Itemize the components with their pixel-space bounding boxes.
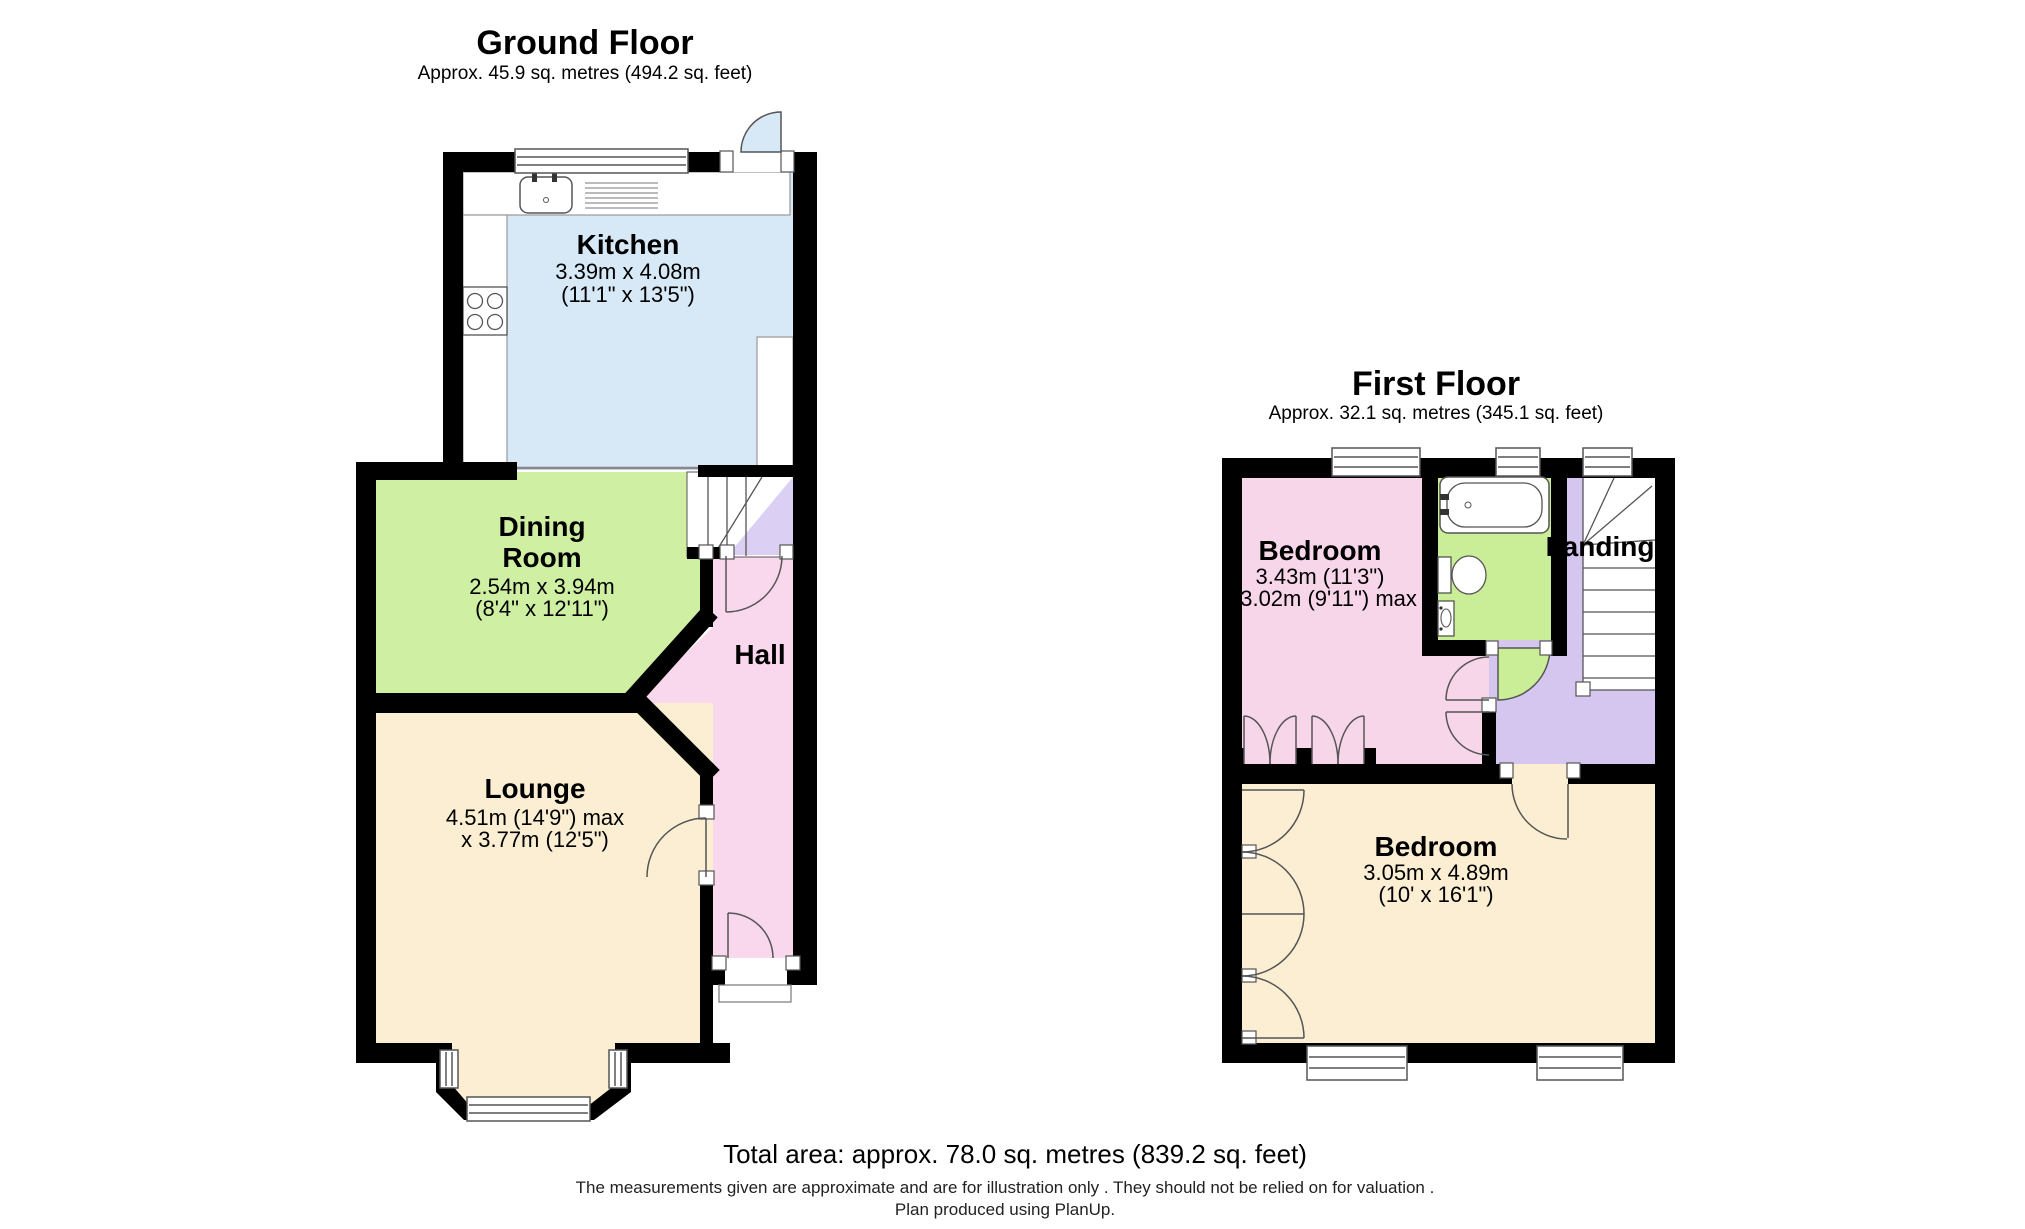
hall-label: Hall xyxy=(734,640,785,669)
stairs-window xyxy=(1583,448,1632,476)
bedroom2-door-opening xyxy=(1512,764,1568,784)
lounge-label: Lounge xyxy=(484,774,585,803)
dining-dims-metric: 2.54m x 3.94m xyxy=(469,575,615,598)
basin-icon xyxy=(1438,601,1454,636)
kitchen-sink-icon xyxy=(520,177,572,213)
front-step xyxy=(719,985,791,1002)
landing-label: Landing xyxy=(1546,532,1655,561)
floorplan-drawing xyxy=(0,0,2025,1229)
hob-icon xyxy=(463,287,507,335)
ground-floor-title: Ground Floor xyxy=(476,26,693,62)
kitchen-unit xyxy=(757,337,793,467)
kitchen-window xyxy=(515,149,688,173)
total-area-text: Total area: approx. 78.0 sq. metres (839… xyxy=(723,1141,1307,1168)
lounge-dims-line2: x 3.77m (12'5") xyxy=(461,828,609,851)
lounge-room xyxy=(366,703,713,1053)
bay-window-right xyxy=(609,1050,627,1088)
bedroom2-window-right xyxy=(1537,1046,1623,1080)
floorplan-canvas: Ground Floor Approx. 45.9 sq. metres (49… xyxy=(0,0,2025,1229)
dining-dims-imperial: (8'4" x 12'11") xyxy=(475,597,609,620)
kitchen-dims-imperial: (11'1" x 13'5") xyxy=(561,283,695,306)
kitchen-label: Kitchen xyxy=(577,230,680,259)
bathtub-icon xyxy=(1440,477,1549,533)
first-floor-area: Approx. 32.1 sq. metres (345.1 sq. feet) xyxy=(1269,404,1604,424)
ground-floor-area: Approx. 45.9 sq. metres (494.2 sq. feet) xyxy=(418,64,753,84)
kitchen-counter-left xyxy=(463,215,507,465)
bedroom2-window-left xyxy=(1307,1046,1407,1080)
bedroom2-label: Bedroom xyxy=(1375,832,1498,861)
bedroom1-window xyxy=(1332,448,1420,476)
kitchen-door-icon xyxy=(741,112,781,152)
dining-label-line2: Room xyxy=(502,543,581,572)
bedroom1-dims-line2: x 3.02m (9'11") max xyxy=(1223,587,1417,610)
gf-stairs xyxy=(687,472,793,557)
toilet-icon xyxy=(1438,556,1486,594)
bay-window-front xyxy=(467,1097,590,1121)
disclaimer-line2: Plan produced using PlanUp. xyxy=(895,1201,1115,1219)
dining-label-line1: Dining xyxy=(498,512,585,541)
kitchen-dims-metric: 3.39m x 4.08m xyxy=(555,260,701,283)
bedroom2-dims-imperial: (10' x 16'1") xyxy=(1378,883,1493,906)
lounge-dims-line1: 4.51m (14'9") max xyxy=(446,806,624,829)
bathroom-window xyxy=(1496,448,1540,476)
bedroom1-dims-line1: 3.43m (11'3") xyxy=(1256,565,1385,588)
front-door-opening xyxy=(725,958,787,985)
first-floor-title: First Floor xyxy=(1352,367,1520,403)
bay-window-left xyxy=(440,1050,458,1088)
bedroom1-label: Bedroom xyxy=(1259,536,1382,565)
bedroom2-dims-metric: 3.05m x 4.89m xyxy=(1363,861,1509,884)
disclaimer-line1: The measurements given are approximate a… xyxy=(576,1179,1435,1197)
ff-stairs xyxy=(1576,468,1655,696)
kitchen-door-opening xyxy=(733,152,781,172)
